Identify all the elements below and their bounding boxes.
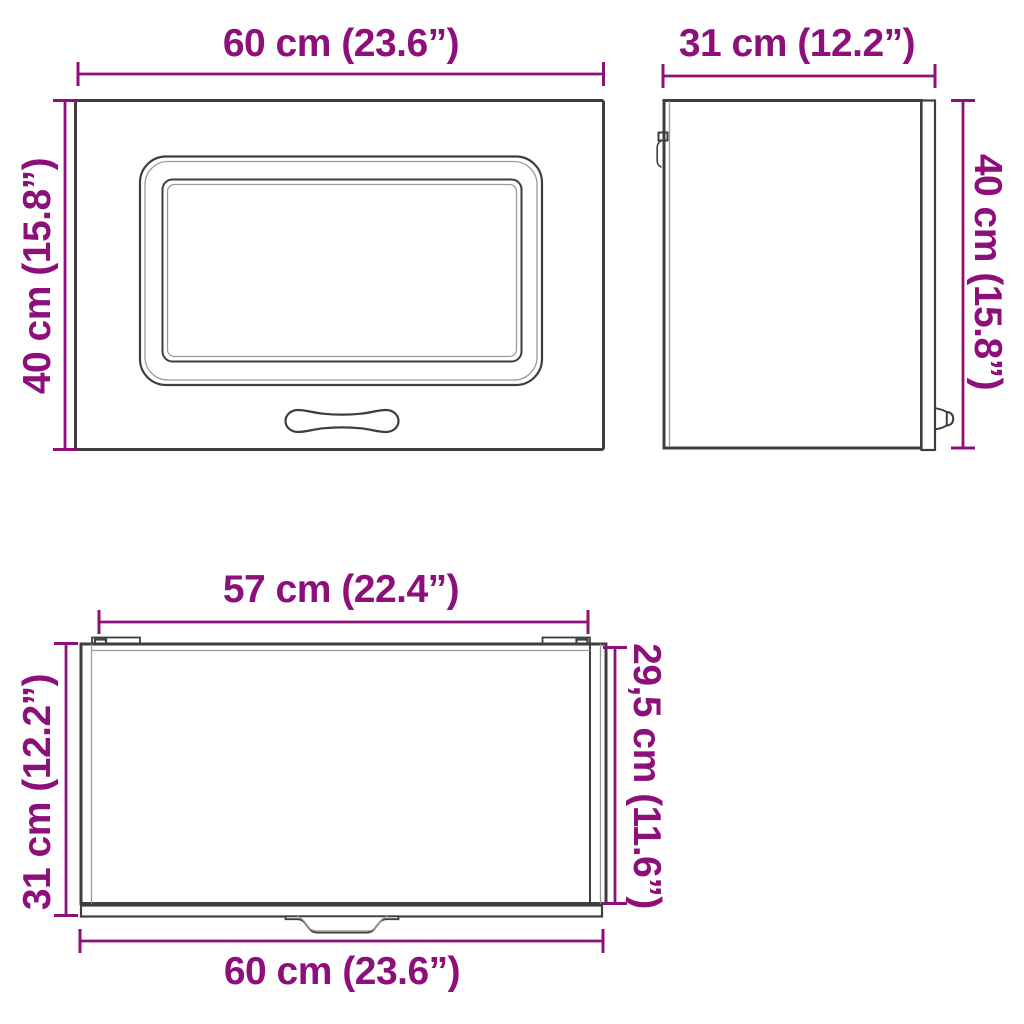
dimension-label-front-height: 40 cm (15.8”): [16, 158, 59, 394]
dimension-side-depth: 31 cm (12.2”): [663, 22, 935, 88]
dimension-front-width: 60 cm (23.6”): [78, 22, 604, 86]
dimension-top-width: 60 cm (23.6”): [80, 929, 603, 993]
dimension-label-side-depth: 31 cm (12.2”): [679, 22, 915, 65]
top-view: [81, 638, 606, 933]
dimension-side-height: 40 cm (15.8”): [951, 101, 1009, 449]
front-view: [76, 101, 604, 450]
dimension-front-height: 40 cm (15.8”): [16, 101, 77, 450]
side-door-edge: [922, 101, 936, 451]
dimension-label-top-inner-width: 57 cm (22.4”): [223, 568, 459, 611]
cabinet-dimension-diagram: 60 cm (23.6”) 40 cm (15.8”) 31 cm (12.2”…: [0, 0, 1024, 1024]
front-cabinet-outline: [76, 101, 604, 450]
door-handle-side-stem: [936, 408, 947, 429]
side-view: [657, 101, 953, 451]
top-carcass-outline: [81, 644, 606, 904]
dimension-top-inner-width: 57 cm (22.4”): [99, 568, 588, 634]
dimension-label-top-inner-depth: 29,5 cm (11.6”): [625, 643, 668, 909]
dimension-label-top-width: 60 cm (23.6”): [224, 950, 460, 993]
dimension-top-depth: 31 cm (12.2”): [16, 644, 78, 916]
top-door-front-strip: [81, 906, 602, 917]
dimension-top-inner-depth: 29,5 cm (11.6”): [603, 643, 668, 909]
side-cabinet-outline: [664, 101, 922, 449]
wall-bracket-hook: [657, 141, 661, 167]
dimension-label-top-depth: 31 cm (12.2”): [16, 674, 59, 910]
diagram-canvas: 60 cm (23.6”) 40 cm (15.8”) 31 cm (12.2”…: [0, 0, 1024, 1024]
dimension-label-side-height: 40 cm (15.8”): [966, 154, 1009, 390]
dimension-label-front-width: 60 cm (23.6”): [223, 22, 459, 65]
